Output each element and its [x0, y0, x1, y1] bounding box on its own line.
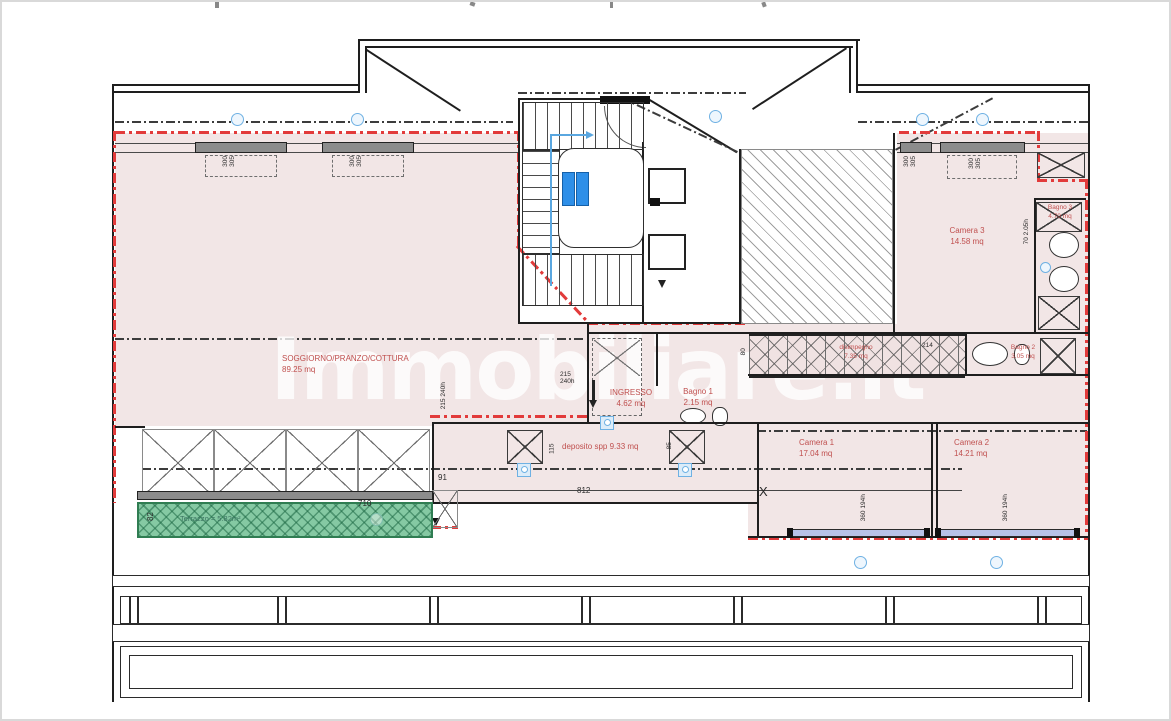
title-fragment	[469, 1, 475, 6]
roof-cross-panel	[1037, 152, 1085, 178]
deposito-area	[432, 424, 758, 504]
marker-circle	[1040, 262, 1051, 273]
title-fragment	[761, 1, 766, 7]
folding-door-panel	[142, 429, 214, 497]
dim-82: 82	[146, 512, 155, 521]
boundary-deposito	[430, 415, 588, 418]
corridor-wall-bottom	[748, 374, 1088, 376]
deposito-label: deposito spp 9.33 mq	[562, 442, 639, 453]
bagno3-wall	[1034, 198, 1086, 200]
boundary-left	[113, 131, 116, 503]
sink	[1049, 232, 1079, 258]
dashdot-line	[518, 92, 746, 94]
skylight-dim: 300	[968, 158, 975, 169]
roof-edge	[365, 46, 853, 48]
dim-line	[438, 490, 962, 491]
deposito-wall-bottom	[432, 502, 758, 504]
camera3-label: Camera 3 14.58 mq	[927, 226, 1007, 248]
dim-215: 215	[560, 371, 571, 378]
roof-edge	[856, 39, 858, 93]
right-wall	[1088, 84, 1090, 702]
deposito-skylight	[507, 430, 543, 464]
bagno3-label: Bagno 3 4.70 mq	[1034, 204, 1086, 222]
x-mark: X	[759, 484, 768, 499]
roof-edge	[112, 84, 360, 86]
marker-circle	[231, 113, 244, 126]
camera1-label: Camera 1 17.04 mq	[799, 438, 834, 460]
dashdot-line	[115, 121, 513, 123]
door-line	[592, 380, 595, 400]
window-wall-line	[115, 152, 518, 153]
window-dim: 360	[860, 510, 867, 521]
hatch-wall	[739, 149, 741, 324]
facade-band-divided	[120, 596, 1082, 624]
roof-edge	[358, 39, 860, 41]
disimpegno-label: disimpegno 7.35 mq	[828, 344, 884, 362]
stair-steps-bottom	[522, 254, 644, 306]
dim-70: 70	[1023, 237, 1030, 244]
folding-door-panel	[358, 429, 430, 497]
stair-path-line	[550, 134, 586, 136]
skylight-projection	[205, 155, 277, 177]
roof-hip	[366, 49, 461, 112]
bagno2-partition	[965, 334, 967, 374]
ingresso-label: INGRESSO 4.62 mq	[600, 388, 662, 410]
hatched-void-area	[741, 149, 893, 324]
skylight-dim: 300	[903, 156, 910, 167]
bagno1-partition	[656, 334, 658, 386]
skylight-dim: 300	[222, 156, 229, 167]
facade-band	[112, 575, 1090, 587]
dim-80: 80	[740, 348, 747, 355]
down-arrow	[589, 400, 597, 408]
shaft-mark	[650, 198, 660, 206]
soggiorno-label: SOGGIORNO/PRANZO/COTTURA 89.25 mq	[282, 354, 409, 376]
window-jamb	[924, 528, 930, 538]
ingresso-wall	[588, 332, 748, 334]
floor-plan: Immobiliare.it 300305 300305 300305 3003…	[0, 0, 1171, 721]
boundary-top-left	[115, 131, 519, 134]
skylight-window	[900, 142, 932, 153]
marker-square	[517, 463, 531, 477]
facade-band	[120, 646, 1082, 698]
stair-wall	[518, 322, 748, 324]
shower	[1038, 296, 1080, 330]
stair-steps-top	[522, 102, 644, 150]
side-cross-panel	[432, 490, 458, 528]
camera2-label: Camera 2 14.21 mq	[954, 438, 989, 460]
dim-115: 115	[548, 444, 555, 454]
stair-path-line	[550, 136, 552, 286]
elevator	[576, 172, 589, 206]
terrace-label: Terrazzo = 5.82m²	[180, 514, 241, 523]
camera-divider	[936, 422, 938, 538]
down-arrow	[658, 280, 666, 288]
folding-door-panel	[286, 429, 358, 497]
deposito-skylight	[669, 430, 705, 464]
dim-91: 91	[438, 473, 447, 482]
bagno1-label: Bagno 1 2.15 mq	[670, 387, 726, 409]
marker-circle	[370, 513, 383, 526]
soggiorno-wall	[115, 426, 145, 428]
camera1-wall	[757, 422, 759, 538]
window-wall-line	[115, 143, 518, 144]
dim-85: 85	[666, 442, 673, 449]
sink	[1049, 266, 1079, 292]
stair-path-arrow	[586, 131, 594, 139]
door-sill	[137, 491, 433, 500]
dim-214: 214	[922, 342, 933, 349]
window-jamb	[935, 528, 941, 538]
stair-wall	[518, 98, 520, 324]
roof-edge	[365, 46, 367, 93]
ridge-line	[115, 338, 585, 340]
camera-divider	[931, 422, 933, 538]
marker-circle	[976, 113, 989, 126]
elevator	[562, 172, 575, 206]
deposito-wall-top	[432, 422, 1088, 424]
marker-circle	[351, 113, 364, 126]
boundary-right	[1085, 179, 1088, 539]
marker-circle	[709, 110, 722, 123]
shaft-box	[648, 234, 686, 270]
wardrobe-cross	[594, 340, 640, 376]
stair-steps-left	[522, 150, 560, 254]
marker-square	[600, 416, 614, 430]
roof-hip	[752, 47, 847, 110]
skylight-window	[195, 142, 287, 153]
roof-edge	[858, 91, 1090, 93]
skylight-dim: 300	[349, 156, 356, 167]
marker-square	[678, 463, 692, 477]
roof-edge	[112, 91, 360, 93]
skylight-window	[940, 142, 1025, 153]
camera1-window	[792, 529, 926, 537]
window-jamb	[787, 528, 793, 538]
window-dim: 360	[1002, 510, 1009, 521]
boundary-right-step	[1037, 179, 1088, 182]
skylight-window	[322, 142, 414, 153]
dashdot-line	[858, 121, 1088, 123]
roof-edge	[358, 39, 360, 93]
window-jamb	[1074, 528, 1080, 538]
bagno2-label: Bagno 2 3.05 mq	[998, 344, 1048, 362]
title-fragment	[215, 2, 219, 8]
folding-door-panel	[214, 429, 286, 497]
soggiorno-area	[115, 133, 518, 426]
marker-circle	[990, 556, 1003, 569]
dim-710: 710	[358, 499, 371, 508]
marker-circle	[916, 113, 929, 126]
roof-edge	[858, 84, 1090, 86]
camera3-wall	[893, 133, 895, 333]
camera2-window	[940, 529, 1076, 537]
boundary-top-right	[899, 131, 1039, 134]
title-fragment	[610, 2, 613, 8]
dim-215-rot: 215	[440, 398, 447, 409]
facade-band	[112, 624, 1090, 642]
roof-edge	[849, 46, 851, 93]
ridge-line	[757, 430, 1087, 432]
skylight-projection	[332, 155, 404, 177]
marker-circle	[854, 556, 867, 569]
